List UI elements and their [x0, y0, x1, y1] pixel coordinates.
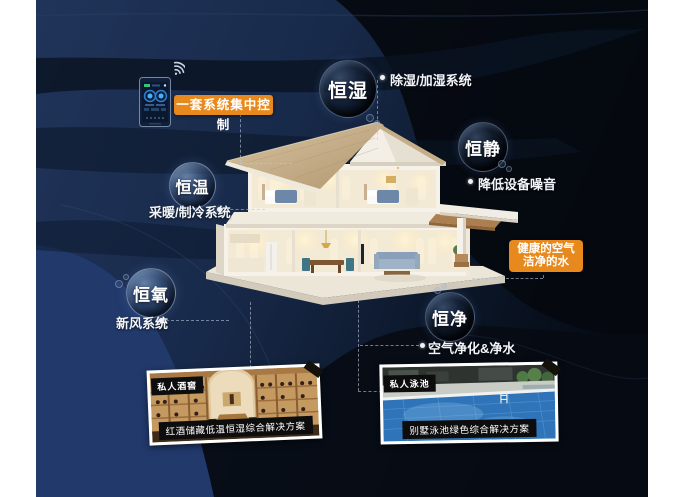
scene-background: 一套系统集中控制 健康的空气 洁净的水 恒湿 恒静 恒温 恒氧 恒净 除湿/加湿…	[36, 0, 648, 497]
thermostat-phone-icon	[139, 77, 171, 127]
connector-pool-photo-h	[358, 391, 382, 392]
connector-temperature	[225, 209, 265, 210]
label-noise-system: 降低设备噪音	[478, 174, 556, 193]
bullet-dot	[217, 207, 222, 212]
bullet-dot	[468, 179, 473, 184]
connector-humidity	[377, 80, 378, 140]
bullet-dot	[420, 343, 425, 348]
decor-bubble	[374, 120, 380, 126]
decor-bubble	[115, 280, 123, 288]
decor-bubble	[506, 166, 512, 172]
photo-tag: 私人酒窖	[151, 376, 204, 395]
label-purification-system: 空气净化&净水	[428, 338, 515, 357]
connector-control-v	[240, 114, 241, 163]
central-control-label: 一套系统集中控制	[174, 95, 273, 115]
connector-wine-photo	[250, 302, 251, 368]
bubble-constant-oxygen: 恒氧	[126, 268, 176, 318]
bubble-constant-humidity: 恒湿	[319, 60, 377, 118]
label-humidity-system: 除湿/加湿系统	[390, 70, 472, 89]
highlight-line1: 健康的空气	[511, 243, 581, 256]
bullet-dot	[380, 75, 385, 80]
connector-purify	[360, 345, 419, 346]
decor-bubble	[366, 114, 374, 122]
healthy-air-water-label: 健康的空气 洁净的水	[509, 240, 583, 272]
photo-caption: 别墅泳池绿色综合解决方案	[402, 419, 536, 439]
photo-card-wine-cellar: 私人酒窖 红酒储藏低温恒湿综合解决方案	[147, 363, 323, 445]
decor-bubble	[498, 160, 506, 168]
decor-bubble	[441, 283, 447, 289]
connector-pool-photo-v	[358, 300, 359, 391]
connector-control-h	[240, 163, 292, 164]
bullet-dot	[159, 318, 164, 323]
decor-bubble	[434, 287, 441, 294]
bubble-constant-clean: 恒净	[425, 292, 475, 342]
photo-tag: 私人泳池	[384, 375, 436, 393]
decor-bubble	[123, 274, 129, 280]
house-lower-floor	[216, 224, 470, 282]
connector-highlight-h	[472, 278, 543, 279]
poster: 一套系统集中控制 健康的空气 洁净的水 恒湿 恒静 恒温 恒氧 恒净 除湿/加湿…	[0, 0, 700, 497]
wifi-icon	[167, 61, 185, 78]
photo-card-swimming-pool: 私人泳池 别墅泳池绿色综合解决方案	[379, 361, 558, 444]
highlight-line2: 洁净的水	[511, 256, 581, 269]
connector-oxygen	[166, 320, 229, 321]
